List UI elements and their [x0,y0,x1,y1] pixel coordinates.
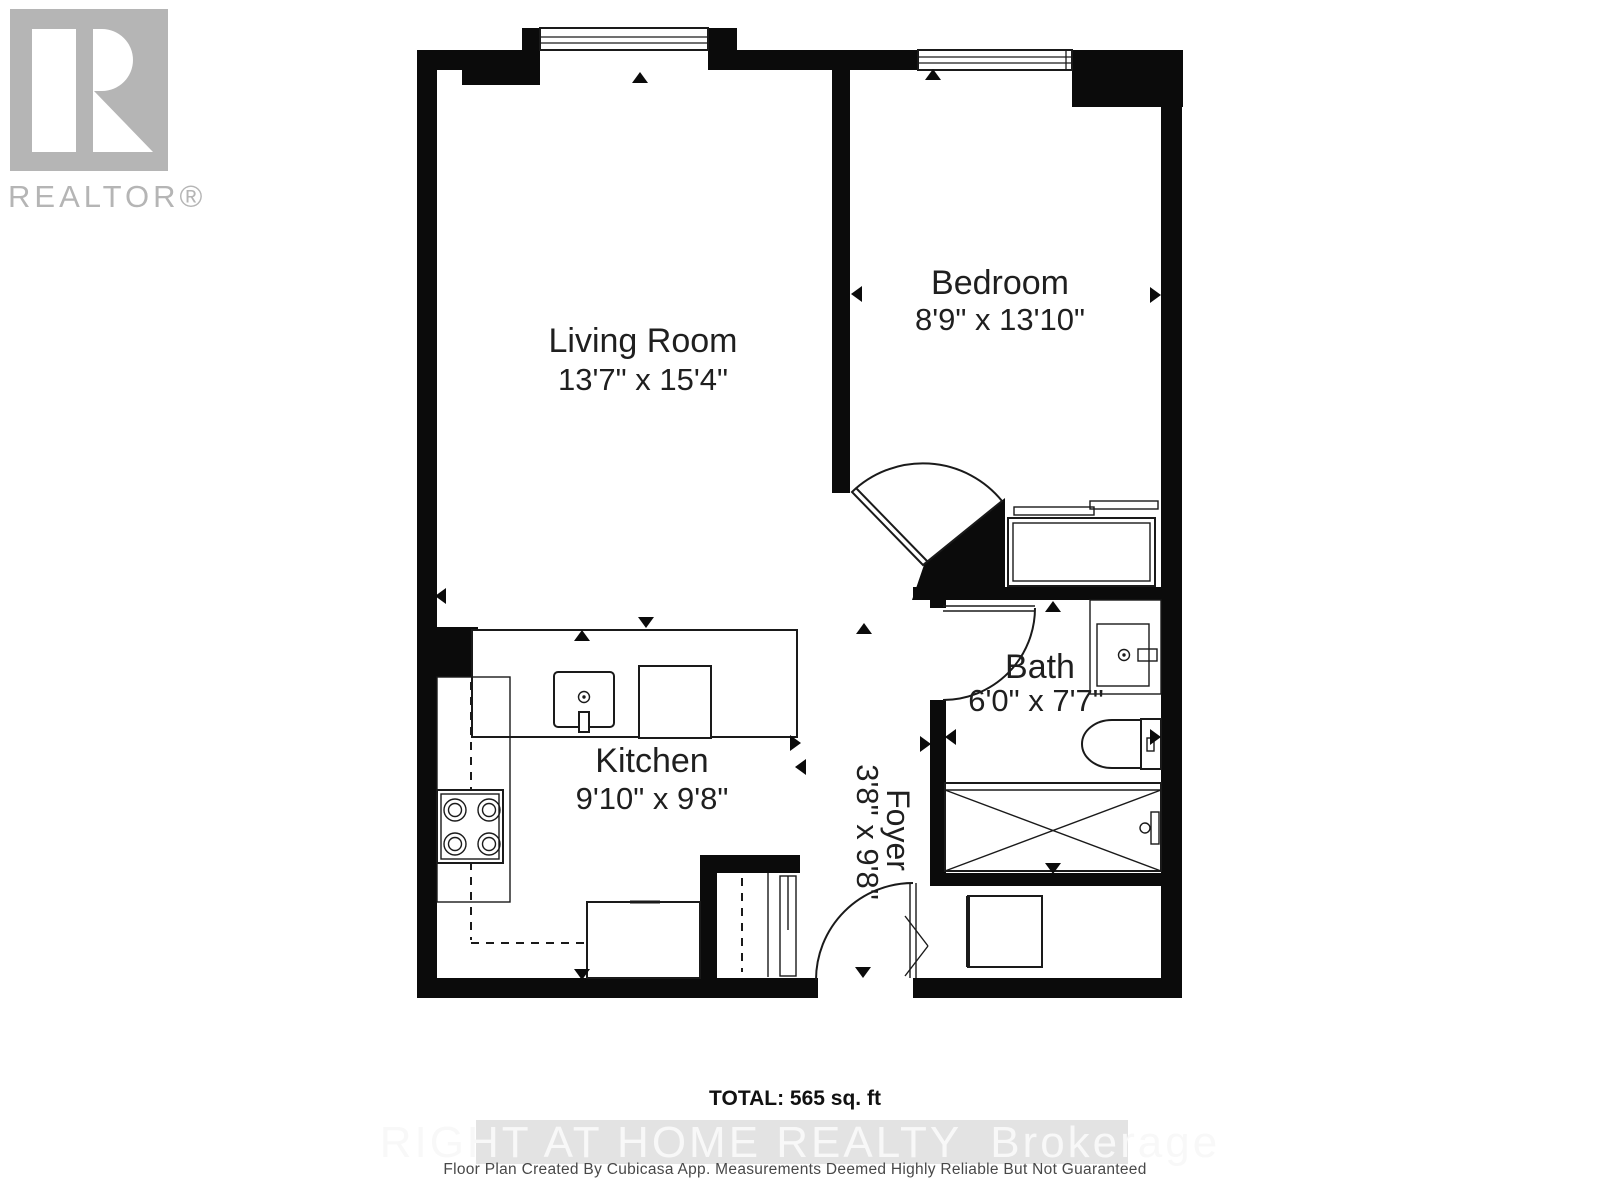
extent-arrow-up-icon [856,623,872,634]
stove-icon [437,790,503,863]
total-area-label: TOTAL: 565 sq. ft [709,1087,881,1110]
extent-arrow-left-icon [795,759,806,775]
room-label-bath: Bath [1005,648,1075,686]
vanity-sink-icon [1090,600,1161,694]
wall-top-left [417,50,540,70]
utility-box [968,896,1042,967]
realtor-logo-r-stem [32,29,76,152]
entry-closet [742,873,796,977]
realtor-logo-label: REALTOR® [8,179,206,214]
wall-bottom-right [913,978,1182,998]
window-bedroom [918,50,1072,70]
extent-arrow-down-icon [638,617,654,628]
kitchen-counter [472,630,797,737]
wall-bath-top [913,587,1182,600]
room-label-bedroom: Bedroom [931,264,1069,302]
extent-arrow-right-icon [920,736,931,752]
room-dims-bedroom: 8'9" x 13'10" [915,302,1085,337]
room-dims-foyer: 3'8" x 9'8" [850,764,885,900]
wall-bath-left [930,700,946,886]
wall-entry-closet-left [700,873,717,978]
wall-top-left-step [462,70,540,85]
extent-arrow-left-icon [945,729,956,745]
room-label-kitchen: Kitchen [595,742,708,780]
wall-bottom-left [417,978,818,998]
closet-box [1008,518,1155,586]
sink-icon [554,672,614,732]
wall-top-middle [737,50,918,70]
wall-window-jamb-right [708,28,737,70]
room-dims-living-room: 13'7" x 15'4" [558,362,728,397]
bathtub-icon [945,783,1161,871]
wall-living-bedroom-divider [832,52,850,493]
wall-top-right-block [1072,50,1183,107]
brokerage-watermark: RIGHT AT HOME REALTYBrokerage [380,1118,1220,1167]
room-dims-kitchen: 9'10" x 9'8" [576,781,729,816]
fridge-icon [587,902,700,978]
bedroom-closet [1008,501,1158,586]
room-label-living-room: Living Room [549,322,738,360]
wall-entry-closet-top [700,855,800,873]
wall-left [417,50,437,978]
wall-window-jamb-left [522,28,540,70]
bath-fixtures [945,600,1161,871]
wall-bath-left-stub [930,600,946,608]
toilet-icon [1082,719,1161,769]
disclaimer-text: Floor Plan Created By Cubicasa App. Meas… [443,1161,1146,1178]
extent-arrow-up-icon [632,72,648,83]
sliding-door-panel [1090,501,1158,509]
extent-arrow-left-icon [851,286,862,302]
window-living-room [540,28,708,50]
dishwasher-icon [639,666,711,738]
floor-plan-page: REALTOR® [0,0,1599,1200]
foyer-nook [968,896,1042,967]
extent-arrow-up-icon [1045,601,1061,612]
extent-arrow-down-icon [855,967,871,978]
realtor-logo: REALTOR® [8,9,206,214]
room-dims-bath: 6'0" x 7'7" [968,683,1104,718]
footer: TOTAL: 565 sq. ft RIGHT AT HOME REALTYBr… [380,1087,1220,1178]
wall-bath-bottom [930,873,1161,886]
sliding-door-panel [1014,507,1094,515]
extent-arrow-right-icon [1150,287,1161,303]
wall-right [1161,107,1182,998]
